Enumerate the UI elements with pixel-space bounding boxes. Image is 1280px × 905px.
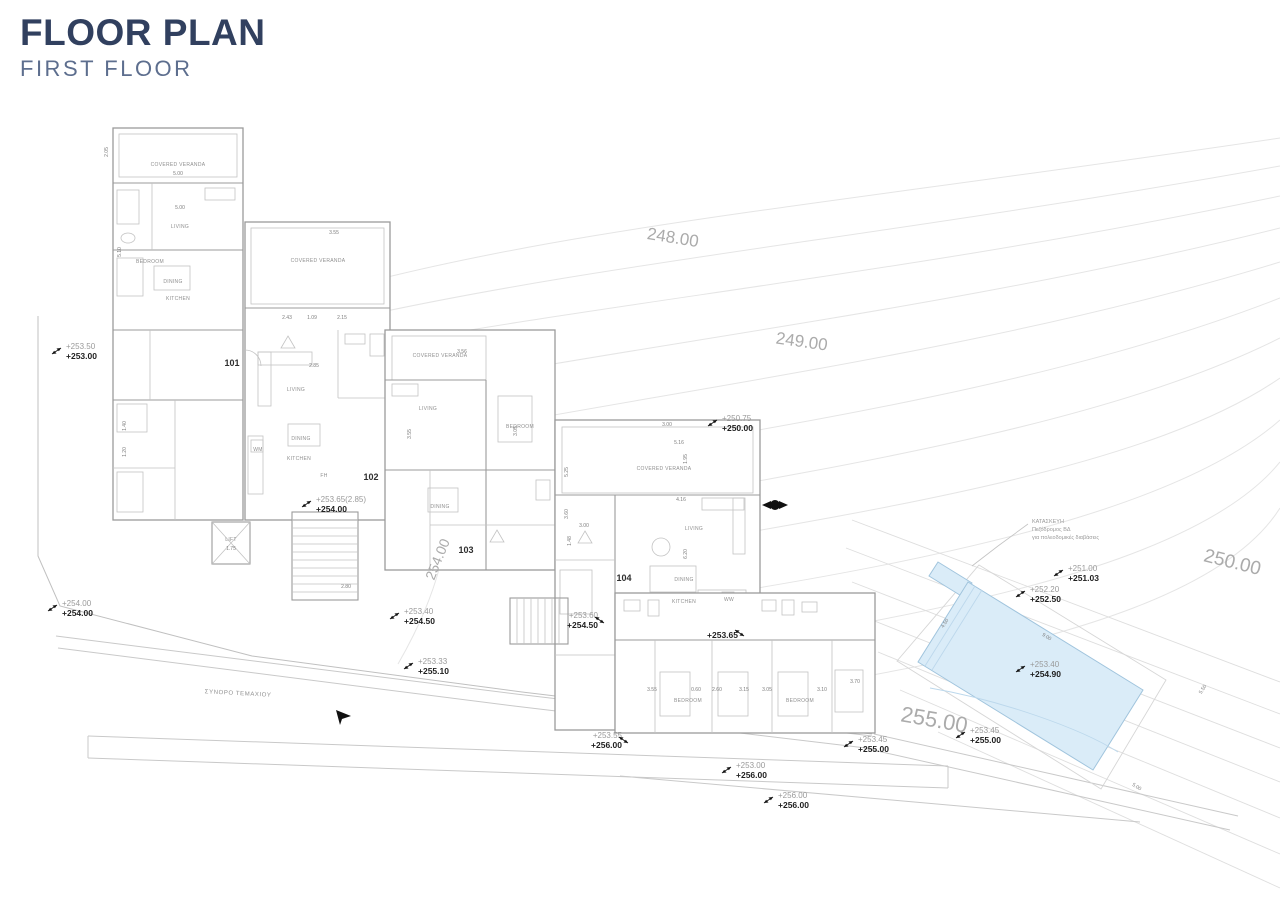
dimension-label: 3.00 [662, 422, 672, 428]
dimension-label: 1.20 [122, 447, 128, 457]
dimension-label: 3.56 [457, 349, 467, 355]
room-label: BEDROOM [674, 698, 702, 704]
elevation-existing-level: +254.00 [62, 599, 92, 608]
elevation-existing-level: +253.40 [1030, 660, 1060, 669]
dimension-label: 2.43 [282, 315, 292, 321]
elevation-existing-level: +256.00 [778, 791, 808, 800]
room-label: COVERED VERANDA [637, 466, 692, 472]
elevation-proposed-level: +253.00 [66, 351, 97, 361]
elevation-marker-icon [722, 767, 731, 773]
unit-number-label: 103 [458, 545, 473, 555]
room-label: LIVING [419, 406, 437, 412]
contour-label: 250.00 [1202, 545, 1263, 579]
dimension-label: 2.60 [712, 687, 722, 693]
dimension-label: 4.16 [676, 497, 686, 503]
elevation-existing-level: +253.40 [404, 607, 434, 616]
elevation-existing-level: +252.20 [1030, 585, 1060, 594]
elevation-proposed-level: +254.00 [62, 608, 93, 618]
room-label: KITCHEN [672, 599, 696, 605]
elevation-marker: +251.00+251.03 [1054, 564, 1099, 583]
dimension-label: 1.95 [683, 454, 689, 464]
dimension-label: 3.15 [739, 687, 749, 693]
elevation-marker-icon [52, 348, 61, 354]
elevation-marker: +256.00+256.00 [764, 791, 809, 810]
room-label: BEDROOM [136, 259, 164, 265]
dimension-label: 2.80 [341, 584, 351, 590]
dimension-label: 5.50 [1198, 684, 1208, 696]
floor-plan-drawing: 248.00249.00250.00255.00254.00 101102103… [0, 0, 1280, 905]
room-label: KITCHEN [287, 456, 311, 462]
elevation-proposed-level: +256.00 [591, 740, 622, 750]
elevation-marker: +253.00+256.00 [722, 761, 767, 780]
elevation-proposed-level: +255.10 [418, 666, 449, 676]
dimension-label: 1.48 [567, 536, 573, 546]
elevation-marker: +253.50+253.00 [52, 342, 97, 361]
room-label: BEDROOM [506, 424, 534, 430]
dimension-label: 3.10 [817, 687, 827, 693]
elevation-proposed-level: +255.00 [970, 735, 1001, 745]
elevation-existing-level: +250.75 [722, 414, 752, 423]
dimension-label: 5.00 [173, 171, 183, 177]
elevation-proposed-level: +254.50 [404, 616, 435, 626]
pool-note-leader [972, 524, 1028, 566]
dimension-label: 1.75 [226, 546, 236, 552]
room-label: KITCHEN [166, 296, 190, 302]
elevation-marker: +253.45+255.00 [844, 735, 889, 754]
dimension-label: 5.00 [175, 205, 185, 211]
room-label: DINING [674, 577, 693, 583]
dimension-label: 2.05 [104, 147, 110, 157]
elevation-proposed-level: +256.00 [778, 800, 809, 810]
page-subtitle: FIRST FLOOR [20, 56, 265, 82]
unit-number-label: 101 [224, 358, 239, 368]
dimension-label: 3.70 [850, 679, 860, 685]
contour-label: 248.00 [646, 224, 700, 251]
room-label: DINING [163, 279, 182, 285]
dimension-label: 5.25 [564, 467, 570, 477]
room-label: DINING [291, 436, 310, 442]
elevation-existing-level: +253.45 [858, 735, 888, 744]
elevation-proposed-level: +252.50 [1030, 594, 1061, 604]
elevation-marker-icon [1016, 591, 1025, 597]
lift-shaft [212, 522, 250, 564]
elevation-existing-level: +253.00 [736, 761, 766, 770]
building-unit-103 [385, 330, 555, 570]
elevation-marker: +253.40+254.50 [390, 607, 435, 626]
elevation-proposed-level: +255.00 [858, 744, 889, 754]
room-label: FH [320, 473, 327, 479]
elevation-marker: +254.00+254.00 [48, 599, 93, 618]
survey-station-icon [762, 500, 788, 510]
elevation-marker-icon [764, 797, 773, 803]
elevation-proposed-level: +254.50 [567, 620, 598, 630]
pool-note-line: για πολεοδομικές διαβάσεις [1032, 534, 1099, 541]
room-label: LIFT [225, 537, 236, 543]
bedroom-wing [615, 593, 875, 733]
room-label: LIVING [685, 526, 703, 532]
dimension-label: 3.55 [329, 230, 339, 236]
elevation-marker-icon [390, 613, 399, 619]
elevation-existing-level: +253.55 [593, 731, 623, 740]
dimension-label: 3.05 [513, 426, 519, 436]
unit-number-label: 102 [363, 472, 378, 482]
dimension-label: 3.05 [762, 687, 772, 693]
elevation-proposed-level: +256.00 [736, 770, 767, 780]
elevation-existing-level: +253.33 [418, 657, 448, 666]
room-label: LIVING [287, 387, 305, 393]
elevation-marker: +253.33+255.10 [404, 657, 449, 676]
elevation-existing-level: +253.65(2.85) [316, 495, 366, 504]
boundary-note: ΣΥΝΟΡΟ ΤΕΜΑΧΙΟΥ [205, 689, 272, 698]
elevation-existing-level: +253.50 [66, 342, 96, 351]
pool-note-line: ΚΑΤΑΣΚΕΥΗ [1032, 519, 1064, 525]
benchmark-icon [336, 710, 351, 725]
dimension-label: 3.00 [579, 523, 589, 529]
elevation-marker-icon [1054, 570, 1063, 576]
pool-note-line: Πεζόδρομος ΒΔ [1032, 526, 1071, 533]
elevation-proposed-level: +254.00 [316, 504, 347, 514]
dimension-label: 2.85 [309, 363, 319, 369]
elevation-existing-level: +253.45 [970, 726, 1000, 735]
dimension-label: 1.40 [122, 421, 128, 431]
room-label: COVERED VERANDA [291, 258, 346, 264]
elevation-proposed-level: +254.90 [1030, 669, 1061, 679]
building-unit-101 [113, 128, 243, 520]
elevation-marker: +253.55+256.00 [591, 731, 628, 750]
room-label: LIVING [171, 224, 189, 230]
dimension-label: 3.55 [407, 429, 413, 439]
elevation-proposed-level: +251.03 [1068, 573, 1099, 583]
dimension-label: 5.10 [117, 247, 123, 257]
dimension-label: 6.20 [683, 549, 689, 559]
elevation-proposed-level: +250.00 [722, 423, 753, 433]
unit-number-label: 104 [616, 573, 631, 583]
elevation-existing-level: +253.60 [569, 611, 599, 620]
dimension-label: 2.15 [337, 315, 347, 321]
dimension-label: 3.55 [647, 687, 657, 693]
room-label: WW [724, 597, 734, 603]
room-label: DINING [430, 504, 449, 510]
title-block: FLOOR PLAN FIRST FLOOR [20, 12, 265, 82]
elevation-level: +253.65 [707, 630, 738, 640]
dimension-label: 3.60 [564, 509, 570, 519]
contour-label: 249.00 [775, 329, 829, 355]
dimension-label: 5.16 [674, 440, 684, 446]
room-label: WM [253, 447, 262, 453]
room-label: COVERED VERANDA [151, 162, 206, 168]
page-title: FLOOR PLAN [20, 12, 265, 54]
elevation-marker-icon [404, 663, 413, 669]
contour-label: 255.00 [899, 701, 970, 737]
dimension-label: 0.60 [691, 687, 701, 693]
elevation-existing-level: +251.00 [1068, 564, 1098, 573]
room-label: BEDROOM [786, 698, 814, 704]
elevation-marker-icon [48, 605, 57, 611]
dimension-label: 1.09 [307, 315, 317, 321]
